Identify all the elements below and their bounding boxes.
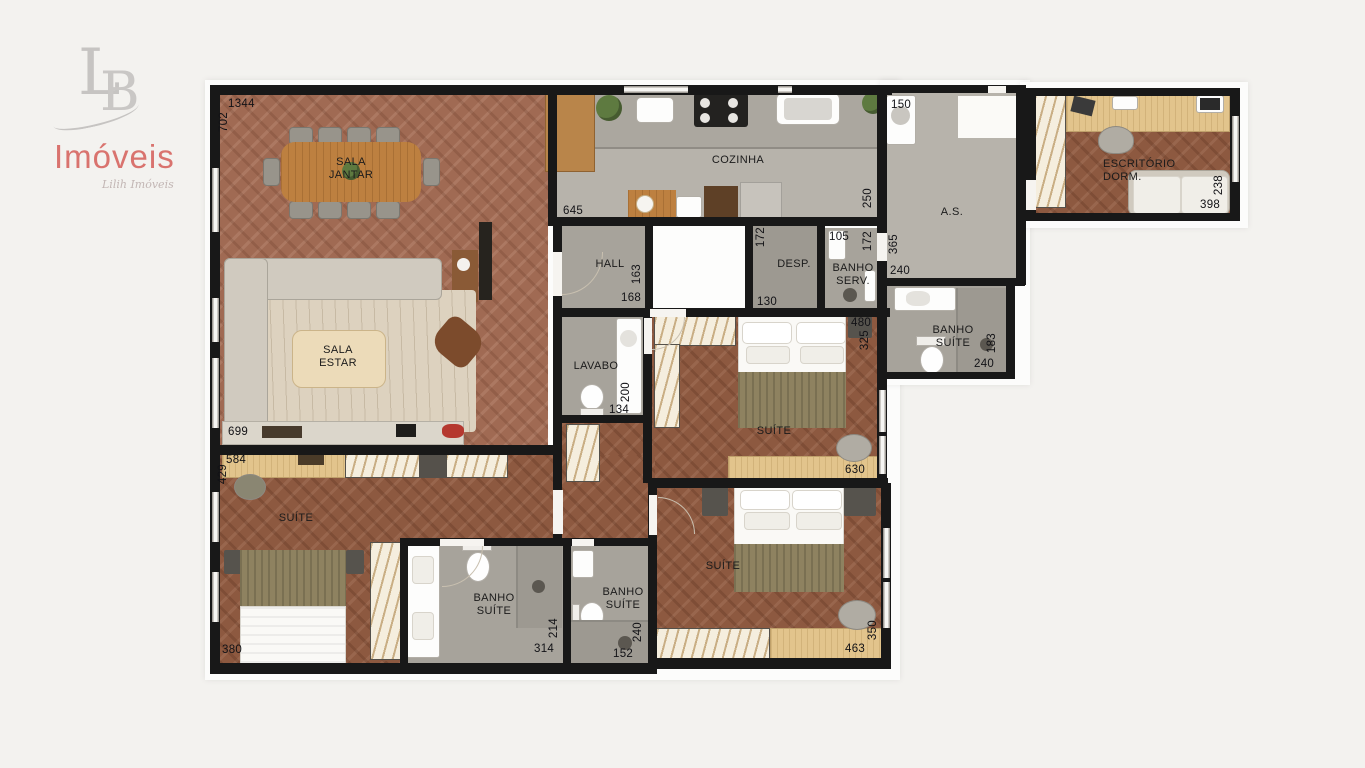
pillow — [740, 490, 790, 510]
nightstand — [844, 486, 876, 516]
window — [883, 528, 890, 578]
logo: L B Imóveis Lilih Imóveis — [50, 46, 220, 166]
dim-suite-left-top: 584 — [226, 454, 246, 466]
sideboard — [222, 421, 464, 445]
pillow — [744, 512, 790, 530]
office-chair — [1098, 126, 1134, 154]
window — [883, 582, 890, 628]
floorplan-canvas: L B Imóveis Lilih Imóveis — [0, 0, 1365, 768]
room-label-cozinha: COZINHA — [700, 154, 776, 167]
tv-screen — [1200, 98, 1220, 110]
room-label-banho-master: BANHO SUÍTE — [926, 324, 980, 350]
room-label-suite-mid: SUÍTE — [746, 425, 802, 438]
dining-chair — [423, 158, 440, 186]
wall — [878, 278, 1025, 286]
dim-banho-serv-h: 172 — [862, 231, 874, 251]
cooktop-burner — [700, 98, 710, 108]
bed-duvet — [240, 606, 346, 664]
room-label-sala-jantar: SALA JANTAR — [320, 156, 382, 182]
dim-as-w: 240 — [890, 265, 910, 277]
wardrobe-hatch — [654, 344, 680, 428]
dim-living-width: 1344 — [228, 98, 255, 110]
dim-banho1-w: 314 — [534, 643, 554, 655]
bath-sink — [572, 550, 594, 578]
dim-suite-bottom-w: 463 — [845, 643, 865, 655]
window — [624, 86, 688, 93]
wall — [400, 538, 408, 671]
wall — [555, 415, 652, 423]
dim-hall-h: 163 — [631, 264, 643, 284]
wall — [882, 372, 1012, 379]
wardrobe-hatch — [656, 628, 770, 660]
dim-escritorio-h: 238 — [1213, 175, 1225, 195]
door-opening — [1026, 180, 1036, 210]
window — [1232, 116, 1239, 182]
dim-banho1-h: 214 — [548, 618, 560, 638]
dining-chair — [289, 201, 313, 219]
dining-chair — [376, 201, 400, 219]
dim-desp-h: 172 — [755, 227, 767, 247]
wall — [1006, 285, 1015, 379]
bed-headboard — [240, 550, 346, 608]
wall — [548, 85, 557, 226]
dim-suite-left-h: 429 — [217, 464, 229, 484]
shower-drain — [843, 288, 857, 302]
door-opening — [572, 539, 594, 546]
room-label-suite-left: SUÍTE — [268, 512, 324, 525]
laundry-closet — [958, 96, 1016, 138]
cooktop-burner — [728, 113, 738, 123]
island-dark-cabinet — [704, 186, 738, 218]
sink-basin — [412, 556, 434, 584]
suite-desk — [770, 628, 882, 660]
door-opening — [877, 233, 887, 261]
room-label-desp: DESP. — [768, 258, 820, 271]
tv — [396, 424, 416, 437]
dim-hall-w: 168 — [621, 292, 641, 304]
door-opening — [650, 309, 686, 317]
wall — [210, 663, 657, 674]
dim-escritorio-w: 398 — [1200, 199, 1220, 211]
island-drawers — [676, 196, 702, 218]
wall — [648, 658, 891, 669]
dim-living-bottom: 699 — [228, 426, 248, 438]
door-opening — [649, 495, 657, 535]
desk-decor — [298, 455, 324, 465]
dim-suite-left-bottom: 380 — [222, 644, 242, 656]
pillow — [746, 346, 790, 364]
dining-chair — [263, 158, 280, 186]
pillow — [800, 346, 844, 364]
window — [212, 168, 219, 232]
dim-as-h: 365 — [888, 234, 900, 254]
wall — [1016, 85, 1026, 285]
wall — [1025, 88, 1237, 96]
room-label-escritorio: ESCRITÓRIO DORM. — [1103, 158, 1199, 184]
sideboard-decor — [262, 426, 302, 438]
wall — [210, 445, 558, 455]
door-opening — [644, 318, 652, 354]
vase — [457, 258, 470, 271]
door-opening — [553, 490, 563, 534]
wall — [400, 538, 656, 546]
window — [212, 572, 219, 622]
desk-chair — [234, 474, 266, 500]
dim-banho-master-w: 240 — [974, 358, 994, 370]
appliance — [740, 182, 782, 218]
desk-paper — [1112, 96, 1138, 110]
wall — [563, 538, 571, 671]
window — [212, 298, 219, 342]
wall — [745, 225, 753, 312]
sink-basin — [620, 330, 637, 347]
kitchen-sink — [636, 97, 674, 123]
room-label-banho2: BANHO SUÍTE — [596, 586, 650, 612]
corridor-closet-hatch — [566, 424, 600, 482]
closet-niche — [420, 452, 446, 478]
desk-chair — [836, 434, 872, 462]
bed-blanket — [738, 372, 846, 428]
toilet — [920, 346, 944, 374]
wall — [645, 225, 653, 312]
dim-banho-serv-top: 105 — [829, 231, 849, 243]
dim-kitchen-right: 250 — [862, 188, 874, 208]
dim-banho-master-h: 183 — [986, 333, 998, 353]
window — [778, 86, 792, 93]
window — [879, 436, 886, 474]
elevator-shaft — [653, 225, 747, 310]
window — [212, 358, 219, 428]
wall — [648, 478, 888, 488]
door-opening — [553, 252, 562, 296]
dim-living-height: 702 — [218, 112, 230, 132]
nightstand — [702, 486, 728, 516]
sink-basin — [906, 291, 930, 306]
dim-as-top: 150 — [891, 99, 911, 111]
room-label-banho1: BANHO SUÍTE — [466, 592, 522, 618]
window — [879, 390, 886, 432]
nightstand — [346, 550, 364, 574]
dim-desp-w: 130 — [757, 296, 777, 308]
wall — [555, 217, 885, 226]
dim-banho2-h: 240 — [632, 622, 644, 642]
dim-suite-bottom-h: 350 — [867, 620, 879, 640]
wardrobe-hatch — [370, 542, 402, 660]
logo-tagline: Lilih Imóveis — [102, 178, 174, 191]
wardrobe-hatch — [446, 452, 508, 478]
office-wardrobe-hatch — [1034, 94, 1066, 208]
plant — [596, 95, 622, 121]
wall — [555, 308, 890, 317]
pillow — [742, 322, 792, 344]
sink-basin — [412, 612, 434, 640]
room-label-suite-bottom: SUÍTE — [695, 560, 751, 573]
dim-suite-mid-top: 480 — [851, 317, 871, 329]
room-label-banho-serv: BANHO SERV. — [828, 262, 878, 288]
dim-kitchen-left: 645 — [563, 205, 583, 217]
dim-banho2-w: 152 — [613, 648, 633, 660]
food-plate — [636, 195, 654, 213]
flower-decor — [442, 424, 464, 438]
room-label-as: A.S. — [930, 206, 974, 219]
sofa-chaise — [224, 258, 268, 430]
pillow — [796, 512, 842, 530]
sink-basin — [784, 98, 832, 120]
pillow — [796, 322, 846, 344]
media-cabinet — [479, 222, 492, 300]
toilet — [580, 384, 604, 410]
dining-chair — [347, 201, 371, 219]
wall — [1025, 213, 1240, 221]
dim-lavabo-w: 134 — [609, 404, 629, 416]
cooktop-burner — [700, 113, 710, 123]
dining-chair — [318, 201, 342, 219]
dim-lavabo-h: 200 — [620, 382, 632, 402]
wardrobe-hatch — [345, 452, 420, 478]
room-label-sala-estar: SALA ESTAR — [303, 344, 373, 370]
wall — [877, 85, 887, 315]
dim-suite-mid-bottom: 630 — [845, 464, 865, 476]
logo-brand-text: Imóveis — [54, 138, 175, 176]
window — [212, 492, 219, 542]
dim-suite-mid-h: 325 — [859, 330, 871, 350]
room-label-lavabo: LAVABO — [570, 360, 622, 373]
pillow — [792, 490, 842, 510]
door-opening — [440, 539, 484, 546]
door-opening — [988, 86, 1006, 93]
room-label-hall: HALL — [585, 258, 635, 271]
shower-drain — [532, 580, 545, 593]
cooktop-burner — [728, 98, 738, 108]
